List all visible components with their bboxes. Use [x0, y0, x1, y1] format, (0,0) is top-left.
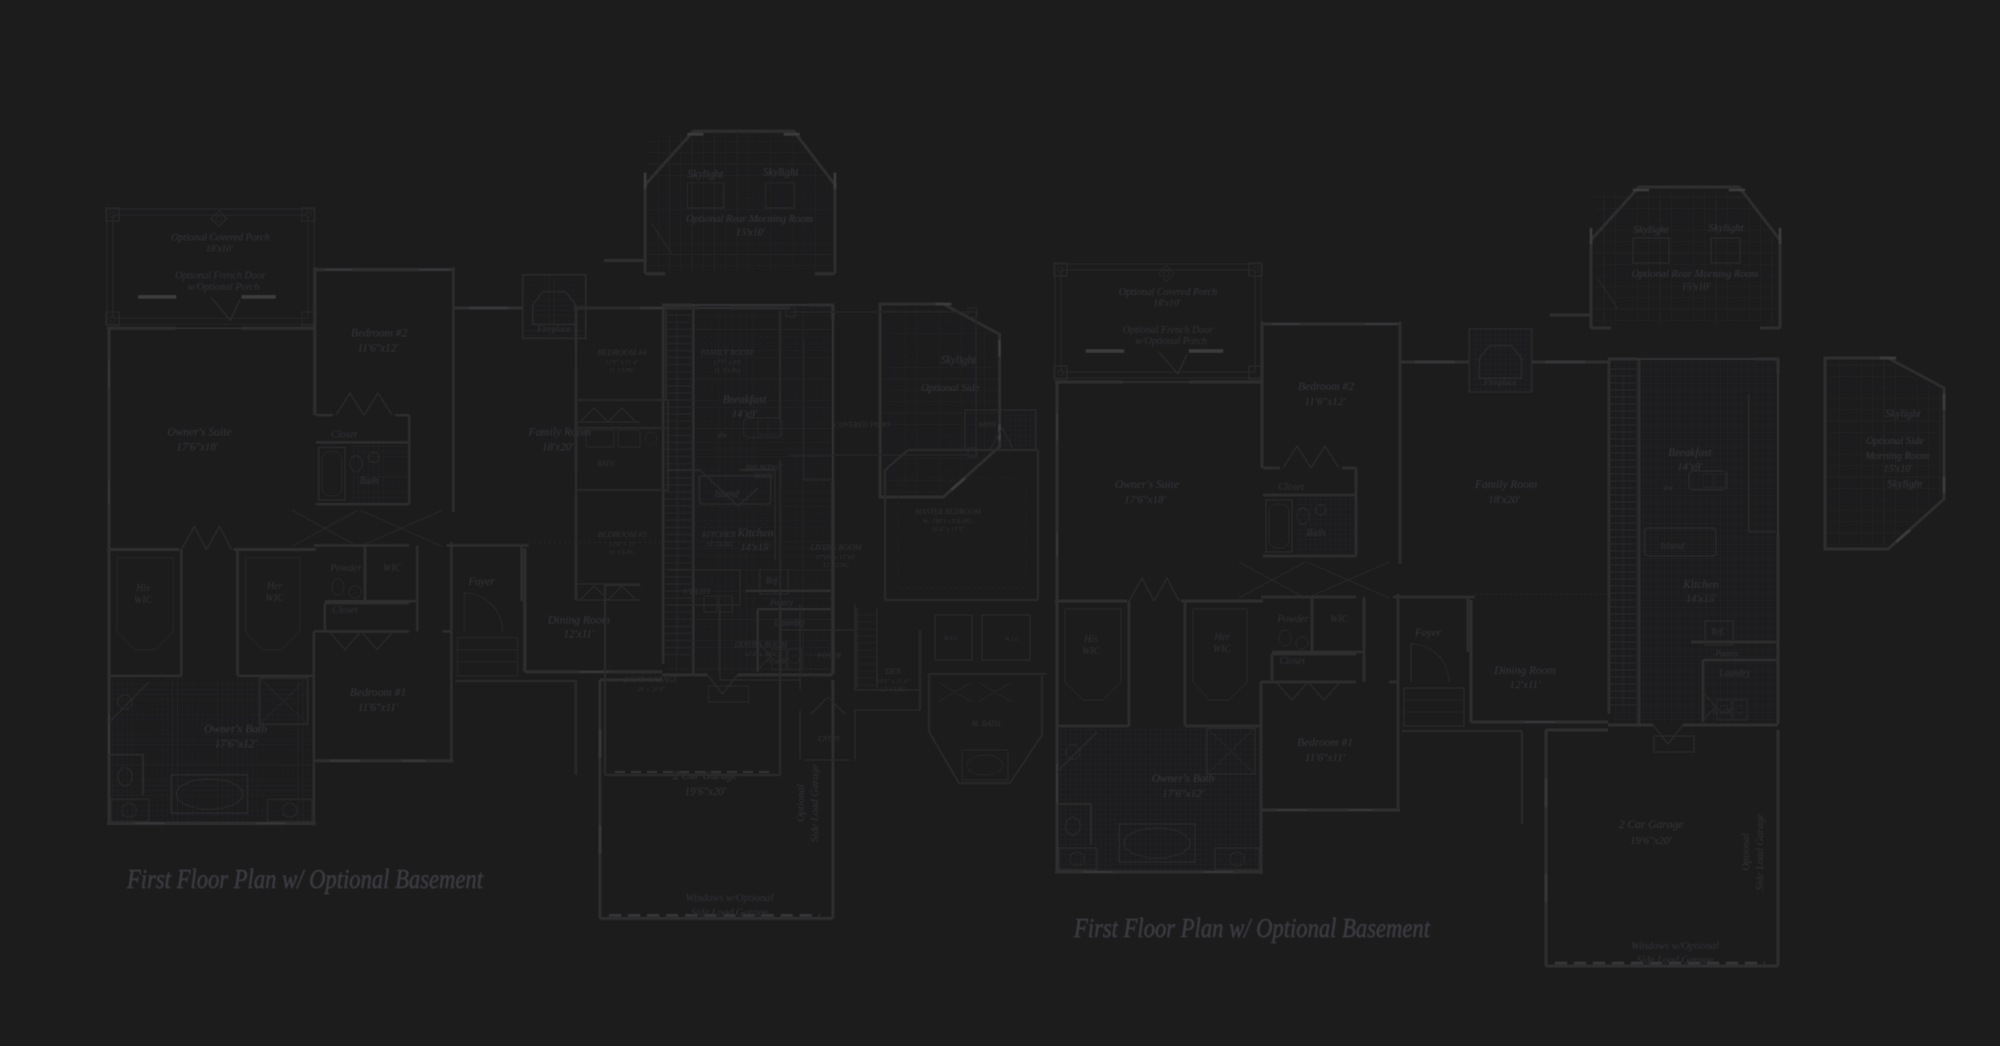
svg-text:10'6" x 11'4": 10'6" x 11'4": [876, 678, 910, 685]
svg-text:Bath: Bath: [1307, 528, 1326, 539]
svg-text:Optional Side: Optional Side: [1866, 436, 1924, 447]
svg-text:16'4" x 15'6": 16'4" x 15'6": [931, 526, 965, 533]
svg-text:12' CLNG: 12' CLNG: [880, 686, 907, 693]
svg-text:BEDROOM #4: BEDROOM #4: [598, 348, 647, 357]
svg-text:12'6" x 11': 12'6" x 11': [608, 541, 636, 548]
svg-text:11' CLNG: 11' CLNG: [714, 367, 740, 374]
svg-text:W.I.C.: W.I.C.: [1005, 636, 1022, 643]
svg-text:12'6" x 11'4": 12'6" x 11'4": [605, 359, 639, 366]
svg-text:Morning Room: Morning Room: [1864, 451, 1929, 462]
svg-text:Foyer: Foyer: [1414, 627, 1442, 639]
svg-text:Bedroom #1: Bedroom #1: [1297, 737, 1353, 749]
svg-text:Optional: Optional: [1741, 833, 1752, 870]
svg-text:W.I.C.: W.I.C.: [944, 635, 961, 642]
svg-text:FAMILY ROOM: FAMILY ROOM: [700, 348, 754, 357]
svg-text:15'x10': 15'x10': [1884, 464, 1914, 475]
svg-text:2 CAR GARAGE: 2 CAR GARAGE: [624, 675, 678, 684]
svg-text:12' CLNG: 12' CLNG: [823, 562, 850, 569]
svg-text:COVERED PATIO: COVERED PATIO: [834, 420, 891, 429]
svg-text:Side Load Garage: Side Load Garage: [1637, 955, 1714, 966]
svg-text:Kitchen: Kitchen: [1682, 579, 1719, 591]
svg-text:M. BATH: M. BATH: [971, 719, 1001, 728]
svg-text:2 Car Garage: 2 Car Garage: [1619, 819, 1684, 831]
svg-text:Her: Her: [1213, 632, 1230, 643]
svg-text:Optional Rear Morning Room: Optional Rear Morning Room: [1632, 269, 1759, 280]
svg-text:Closet: Closet: [1278, 482, 1304, 493]
svg-text:Optional Covered Porch: Optional Covered Porch: [1119, 287, 1217, 298]
svg-text:First Floor Plan w/ Optional: First Floor Plan w/ Optional Basement: [1073, 913, 1431, 943]
svg-text:Optional French Door: Optional French Door: [1123, 325, 1213, 336]
svg-text:Powder: Powder: [1276, 614, 1308, 625]
svg-text:Breakfast: Breakfast: [1668, 447, 1712, 459]
svg-text:18'x20': 18'x20': [1488, 494, 1520, 506]
svg-text:Island: Island: [1659, 542, 1684, 552]
svg-text:18'x10': 18'x10': [1153, 299, 1181, 309]
svg-text:KITCHEN: KITCHEN: [701, 530, 736, 539]
svg-text:Side Load Garage: Side Load Garage: [1755, 813, 1766, 890]
svg-text:Skylight: Skylight: [1708, 222, 1744, 234]
svg-text:12'x11': 12'x11': [1510, 679, 1541, 691]
svg-text:w/Optional Porch: w/Optional Porch: [1135, 336, 1207, 347]
svg-text:WIC: WIC: [1082, 646, 1101, 657]
svg-text:FOYER: FOYER: [816, 651, 841, 660]
svg-text:Fireplace: Fireplace: [1483, 377, 1517, 387]
svg-text:BREAKFAST: BREAKFAST: [746, 464, 784, 472]
svg-text:NOOK: NOOK: [753, 472, 774, 480]
svg-text:12'4" x 13'4": 12'4" x 13'4": [744, 651, 778, 658]
svg-text:11'6"x12': 11'6"x12': [1305, 396, 1347, 408]
svg-text:First Floor Plan w/ Optional: First Floor Plan w/ Optional Basement: [126, 864, 484, 894]
svg-text:Skylight: Skylight: [1887, 478, 1923, 490]
svg-text:Windows w/Optional: Windows w/Optional: [1631, 941, 1719, 952]
svg-text:14'x15': 14'x15': [1686, 594, 1717, 605]
svg-text:LIVING ROOM: LIVING ROOM: [810, 543, 863, 552]
svg-text:Skylight: Skylight: [1633, 224, 1669, 236]
svg-text:19'6"x20': 19'6"x20': [1630, 835, 1672, 847]
svg-text:Ref.: Ref.: [1710, 626, 1724, 636]
svg-text:15'x10': 15'x10': [1682, 282, 1712, 293]
svg-text:BEDROOM #3: BEDROOM #3: [598, 530, 647, 539]
svg-text:DEN: DEN: [884, 667, 902, 676]
svg-text:17'6"x12': 17'6"x12': [1162, 788, 1204, 800]
svg-text:Owner's Suite: Owner's Suite: [1115, 479, 1179, 491]
svg-text:17'6"x18': 17'6"x18': [1124, 494, 1166, 506]
svg-text:Dining Room: Dining Room: [1493, 665, 1556, 677]
svg-text:20' x 20'4": 20' x 20'4": [637, 686, 665, 693]
svg-text:His: His: [1083, 634, 1098, 645]
svg-text:Laundry: Laundry: [1719, 668, 1751, 678]
svg-text:dw: dw: [1663, 483, 1673, 492]
svg-text:BATH: BATH: [978, 421, 996, 429]
svg-text:Closet: Closet: [1279, 656, 1305, 667]
svg-text:Owner's Bath: Owner's Bath: [1152, 773, 1215, 785]
svg-text:W/ TREY CEILING: W/ TREY CEILING: [923, 518, 974, 525]
svg-text:11'6"x11': 11'6"x11': [1305, 752, 1346, 764]
svg-text:Skylight: Skylight: [1885, 408, 1921, 420]
svg-text:11' CLNG: 11' CLNG: [609, 367, 635, 374]
svg-text:UTILITY: UTILITY: [683, 587, 711, 596]
svg-text:MASTER BEDROOM: MASTER BEDROOM: [914, 507, 982, 516]
svg-text:WIC: WIC: [1330, 614, 1349, 625]
svg-text:Pantry: Pantry: [1714, 648, 1738, 658]
svg-text:WIC: WIC: [1213, 644, 1232, 655]
svg-text:17'10" x 15'10": 17'10" x 15'10": [816, 554, 857, 561]
svg-text:10' CLNG: 10' CLNG: [706, 541, 733, 548]
svg-text:BATH: BATH: [597, 460, 615, 468]
svg-text:17'5" x 19': 17'5" x 19': [713, 359, 742, 366]
svg-text:ENTRY: ENTRY: [817, 734, 841, 743]
svg-text:11' CLNG: 11' CLNG: [609, 549, 635, 556]
svg-text:Family Room: Family Room: [1474, 479, 1537, 491]
svg-text:Bedroom #2: Bedroom #2: [1298, 381, 1354, 393]
